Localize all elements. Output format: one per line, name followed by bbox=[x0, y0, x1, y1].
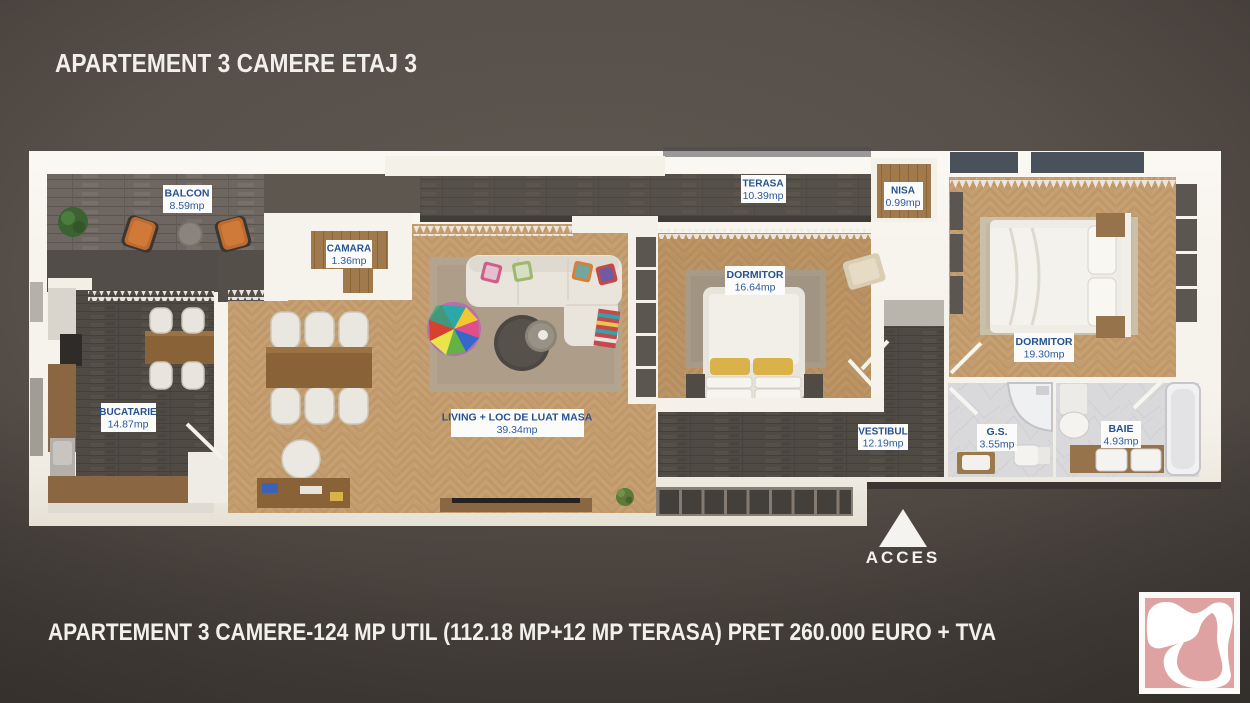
svg-text:CAMARA: CAMARA bbox=[327, 244, 371, 255]
svg-text:BALCON: BALCON bbox=[165, 188, 210, 200]
svg-text:16.64mp: 16.64mp bbox=[735, 282, 776, 294]
svg-text:19.30mp: 19.30mp bbox=[1024, 349, 1065, 361]
svg-text:4.93mp: 4.93mp bbox=[1103, 436, 1138, 448]
svg-text:TERASA: TERASA bbox=[742, 179, 783, 190]
svg-text:LIVING + LOC DE LUAT MASA: LIVING + LOC DE LUAT MASA bbox=[442, 412, 593, 424]
svg-text:12.19mp: 12.19mp bbox=[863, 438, 904, 450]
svg-text:NISA: NISA bbox=[891, 186, 915, 197]
svg-text:0.99mp: 0.99mp bbox=[885, 197, 920, 209]
svg-text:BUCATARIE: BUCATARIE bbox=[99, 407, 157, 418]
svg-text:39.34mp: 39.34mp bbox=[497, 424, 538, 436]
svg-text:3.55mp: 3.55mp bbox=[979, 439, 1014, 451]
svg-text:DORMITOR: DORMITOR bbox=[1016, 336, 1073, 348]
svg-text:14.87mp: 14.87mp bbox=[108, 419, 149, 431]
svg-text:APARTEMENT 3 CAMERE-124 MP UTI: APARTEMENT 3 CAMERE-124 MP UTIL (112.18 … bbox=[48, 619, 996, 646]
svg-text:10.39mp: 10.39mp bbox=[743, 190, 784, 202]
svg-text:8.59mp: 8.59mp bbox=[169, 200, 204, 212]
svg-text:1.36mp: 1.36mp bbox=[331, 255, 366, 267]
svg-text:DORMITOR: DORMITOR bbox=[727, 269, 784, 281]
svg-text:ACCES: ACCES bbox=[866, 548, 941, 567]
svg-text:G.S.: G.S. bbox=[986, 426, 1007, 438]
svg-text:BAIE: BAIE bbox=[1108, 423, 1133, 435]
svg-text:APARTEMENT 3 CAMERE ETAJ 3: APARTEMENT 3 CAMERE ETAJ 3 bbox=[55, 48, 417, 78]
svg-text:VESTIBUL: VESTIBUL bbox=[858, 427, 907, 438]
